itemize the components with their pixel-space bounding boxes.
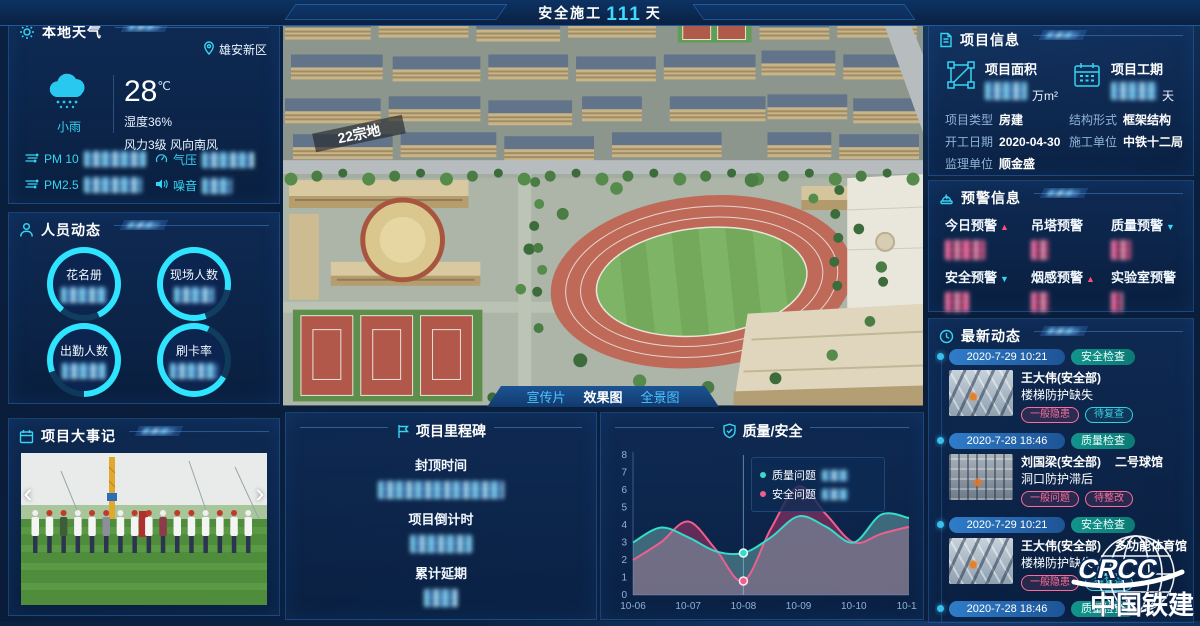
issue-text: 洞口防护滞后 xyxy=(1021,471,1163,488)
svg-text:10-06: 10-06 xyxy=(620,601,646,612)
clock-icon xyxy=(939,329,954,344)
svg-text:4: 4 xyxy=(621,520,627,531)
metric-pm10: PM 10 xyxy=(25,151,146,167)
inspector-name: 王大伟(安全部) xyxy=(1021,371,1101,385)
update-type-badge: 安全检查 xyxy=(1071,349,1135,365)
status-tag: 待复查 xyxy=(1085,407,1133,423)
carousel-next-button[interactable]: › xyxy=(251,477,269,511)
weather-panel: 本地天气 雄安新区 小雨 28℃ 湿度36% 风力3级 风向南风 PM 10 P… xyxy=(8,14,280,204)
person-icon xyxy=(19,222,34,238)
mist-icon xyxy=(25,178,39,193)
timeline-dot xyxy=(937,521,944,528)
personnel-panel: 人员动态 花名册 现场人数 出勤人数 刷卡率 xyxy=(8,212,280,404)
basketball-courts xyxy=(293,310,482,402)
svg-text:10-11: 10-11 xyxy=(897,601,917,612)
milestone-delay: 累计延期 xyxy=(286,563,596,612)
svg-text:6: 6 xyxy=(621,485,627,496)
flag-icon xyxy=(396,424,410,439)
safety-days-value: 111 xyxy=(606,4,642,25)
tab-render-view[interactable]: 效果图 xyxy=(583,387,622,406)
update-date: 2020-7-29 10:21 xyxy=(949,349,1065,365)
top-header-bar: 安全施工111天 xyxy=(0,0,1200,26)
speaker-icon xyxy=(155,178,168,193)
rain-cloud-icon xyxy=(42,98,96,115)
svg-text:7: 7 xyxy=(621,468,627,479)
milestone-panel: 项目里程碑 封顶时间 项目倒计时 累计延期 xyxy=(285,412,597,620)
warning-quality: 质量预警▼ xyxy=(1111,215,1193,265)
gauge-icon xyxy=(155,152,168,167)
trend-down-icon: ▼ xyxy=(1000,274,1009,284)
header-line xyxy=(615,427,714,435)
warning-today: 今日预警▲ xyxy=(945,215,1027,265)
metric-noise: 噪音 xyxy=(155,177,232,194)
svg-text:2: 2 xyxy=(621,555,627,566)
field-start-date: 开工日期2020-04-30 xyxy=(945,133,1060,150)
header-line xyxy=(1034,331,1183,341)
ring-onsite: 现场人数 xyxy=(157,247,231,321)
header-line xyxy=(494,427,582,435)
status-tag: 待整改 xyxy=(1085,491,1133,507)
svg-text:中国铁建: 中国铁建 xyxy=(1090,590,1194,620)
warning-crane: 吊塔预警 xyxy=(1031,215,1113,265)
severity-tag: 一般问题 xyxy=(1021,491,1079,507)
document-icon xyxy=(939,32,953,48)
condition-label: 小雨 xyxy=(27,118,111,135)
warnings-panel: 预警信息 今日预警▲ 吊塔预警 质量预警▼ 安全预警▼ 烟感预警▲ 实验室预警 xyxy=(928,180,1194,312)
svg-text:10-07: 10-07 xyxy=(675,601,701,612)
metric-pressure: 气压 xyxy=(155,151,254,168)
temperature: 28℃ xyxy=(124,71,218,107)
series-dot-quality xyxy=(760,472,766,478)
svg-text:10-10: 10-10 xyxy=(841,601,867,612)
series-dot-safety xyxy=(760,491,766,497)
warnings-title: 预警信息 xyxy=(961,188,1021,208)
project-info-title: 项目信息 xyxy=(960,30,1020,50)
issue-text: 楼梯防护缺失 xyxy=(1021,387,1133,404)
timeline-dot xyxy=(937,353,944,360)
crcc-logo: CRCC 中国铁建 xyxy=(1048,532,1200,621)
quality-safety-panel: 质量/安全 01234567810-0610-0710-0810-0910-10… xyxy=(600,412,924,620)
location-label: 雄安新区 xyxy=(203,41,267,58)
header-line xyxy=(810,427,909,435)
trend-up-icon: ▲ xyxy=(1000,222,1009,232)
calendar-icon xyxy=(1071,59,1103,96)
metric-pm25: PM2.5 xyxy=(25,177,142,193)
svg-text:10-09: 10-09 xyxy=(786,601,812,612)
inspector-name: 刘国梁(安全部) xyxy=(1021,455,1101,469)
campus-3d-view[interactable]: 22宗地 宣传片 效果图 全景图 xyxy=(283,10,923,406)
calendar-icon xyxy=(19,429,34,444)
header-line xyxy=(300,427,388,435)
warning-lab: 实验室预警 xyxy=(1111,267,1193,317)
update-photo xyxy=(949,370,1013,416)
timeline-dot xyxy=(937,605,944,612)
shield-check-icon xyxy=(722,423,737,439)
stat-project-duration: 项目工期天 xyxy=(1071,59,1174,105)
milestone-countdown: 项目倒计时 xyxy=(286,509,596,558)
header-line xyxy=(114,225,269,235)
field-builder: 施工单位中铁十二局 xyxy=(1069,133,1183,150)
carousel-prev-button[interactable]: ‹ xyxy=(19,477,37,511)
update-item[interactable]: 2020-7-29 10:21 安全检查 王大伟(安全部) 楼梯防护缺失 一般隐… xyxy=(949,349,1189,423)
header-line xyxy=(1034,193,1183,203)
update-type-badge: 质量检查 xyxy=(1071,433,1135,449)
sun-icon xyxy=(19,24,35,40)
milestone-photo xyxy=(21,453,267,605)
campus-render: 22宗地 xyxy=(283,10,923,406)
milestone-topping-time: 封顶时间 xyxy=(286,455,596,504)
divider xyxy=(113,75,114,133)
personnel-title: 人员动态 xyxy=(41,220,101,240)
humidity: 湿度36% xyxy=(124,113,218,130)
updates-title: 最新动态 xyxy=(961,326,1021,346)
round-hall xyxy=(363,200,443,280)
milestone-title: 项目里程碑 xyxy=(416,421,486,441)
events-panel: 项目大事记 ‹ › xyxy=(8,418,280,616)
svg-text:10-08: 10-08 xyxy=(731,601,757,612)
project-info-panel: 项目信息 项目面积万m² 项目工期天 项目类型房建 结构形式框架结构 开工日期2… xyxy=(928,22,1194,176)
update-type-badge: 安全检查 xyxy=(1071,517,1135,533)
location-pin-icon xyxy=(203,41,215,58)
timeline-dot xyxy=(937,437,944,444)
chart-title: 质量/安全 xyxy=(743,421,803,441)
field-structure: 结构形式框架结构 xyxy=(1069,111,1171,128)
header-line xyxy=(129,431,269,441)
update-date: 2020-7-29 10:21 xyxy=(949,517,1065,533)
svg-text:1: 1 xyxy=(621,573,627,584)
safety-days-counter: 安全施工111天 xyxy=(0,3,1200,26)
location-name: 二号球馆 xyxy=(1115,455,1163,469)
svg-text:3: 3 xyxy=(621,538,627,549)
alert-siren-icon xyxy=(939,191,954,206)
tab-panorama[interactable]: 全景图 xyxy=(641,387,680,406)
mist-icon xyxy=(25,152,39,167)
field-project-type: 项目类型房建 xyxy=(945,111,1023,128)
svg-text:8: 8 xyxy=(621,450,627,461)
tab-promo-video[interactable]: 宣传片 xyxy=(526,387,565,406)
trend-down-icon: ▼ xyxy=(1166,222,1175,232)
svg-text:CRCC: CRCC xyxy=(1075,553,1161,584)
update-item[interactable]: 2020-7-28 18:46 质量检查 刘国梁(安全部)二号球馆 洞口防护滞后… xyxy=(949,433,1189,507)
area-icon xyxy=(945,59,977,96)
warning-smoke: 烟感预警▲ xyxy=(1031,267,1113,317)
update-date: 2020-7-28 18:46 xyxy=(949,433,1065,449)
update-photo xyxy=(949,454,1013,500)
trend-up-icon: ▲ xyxy=(1086,274,1095,284)
chart-tooltip: 质量问题 安全问题 xyxy=(751,457,885,512)
safety-days-label: 安全施工 xyxy=(538,5,602,21)
svg-text:5: 5 xyxy=(621,503,627,514)
ring-card-rate: 刷卡率 xyxy=(157,323,231,397)
safety-days-unit: 天 xyxy=(646,5,662,21)
events-title: 项目大事记 xyxy=(41,426,116,446)
stat-project-area: 项目面积万m² xyxy=(945,59,1058,105)
ring-attendance: 出勤人数 xyxy=(47,323,121,397)
view-tabbar: 宣传片 效果图 全景图 xyxy=(487,386,719,407)
header-line xyxy=(115,27,269,37)
severity-tag: 一般隐患 xyxy=(1021,407,1079,423)
weather-condition: 小雨 xyxy=(27,71,111,135)
header-line xyxy=(1033,35,1183,45)
dashboard-root: { "top_header": { "label": "安全施工", "days… xyxy=(0,0,1200,621)
update-photo xyxy=(949,538,1013,584)
warning-safety: 安全预警▼ xyxy=(945,267,1027,317)
location-text: 雄安新区 xyxy=(219,41,267,58)
ring-roster: 花名册 xyxy=(47,247,121,321)
svg-text:0: 0 xyxy=(621,590,627,601)
field-supervisor: 监理单位顺金盛 xyxy=(945,155,1035,172)
